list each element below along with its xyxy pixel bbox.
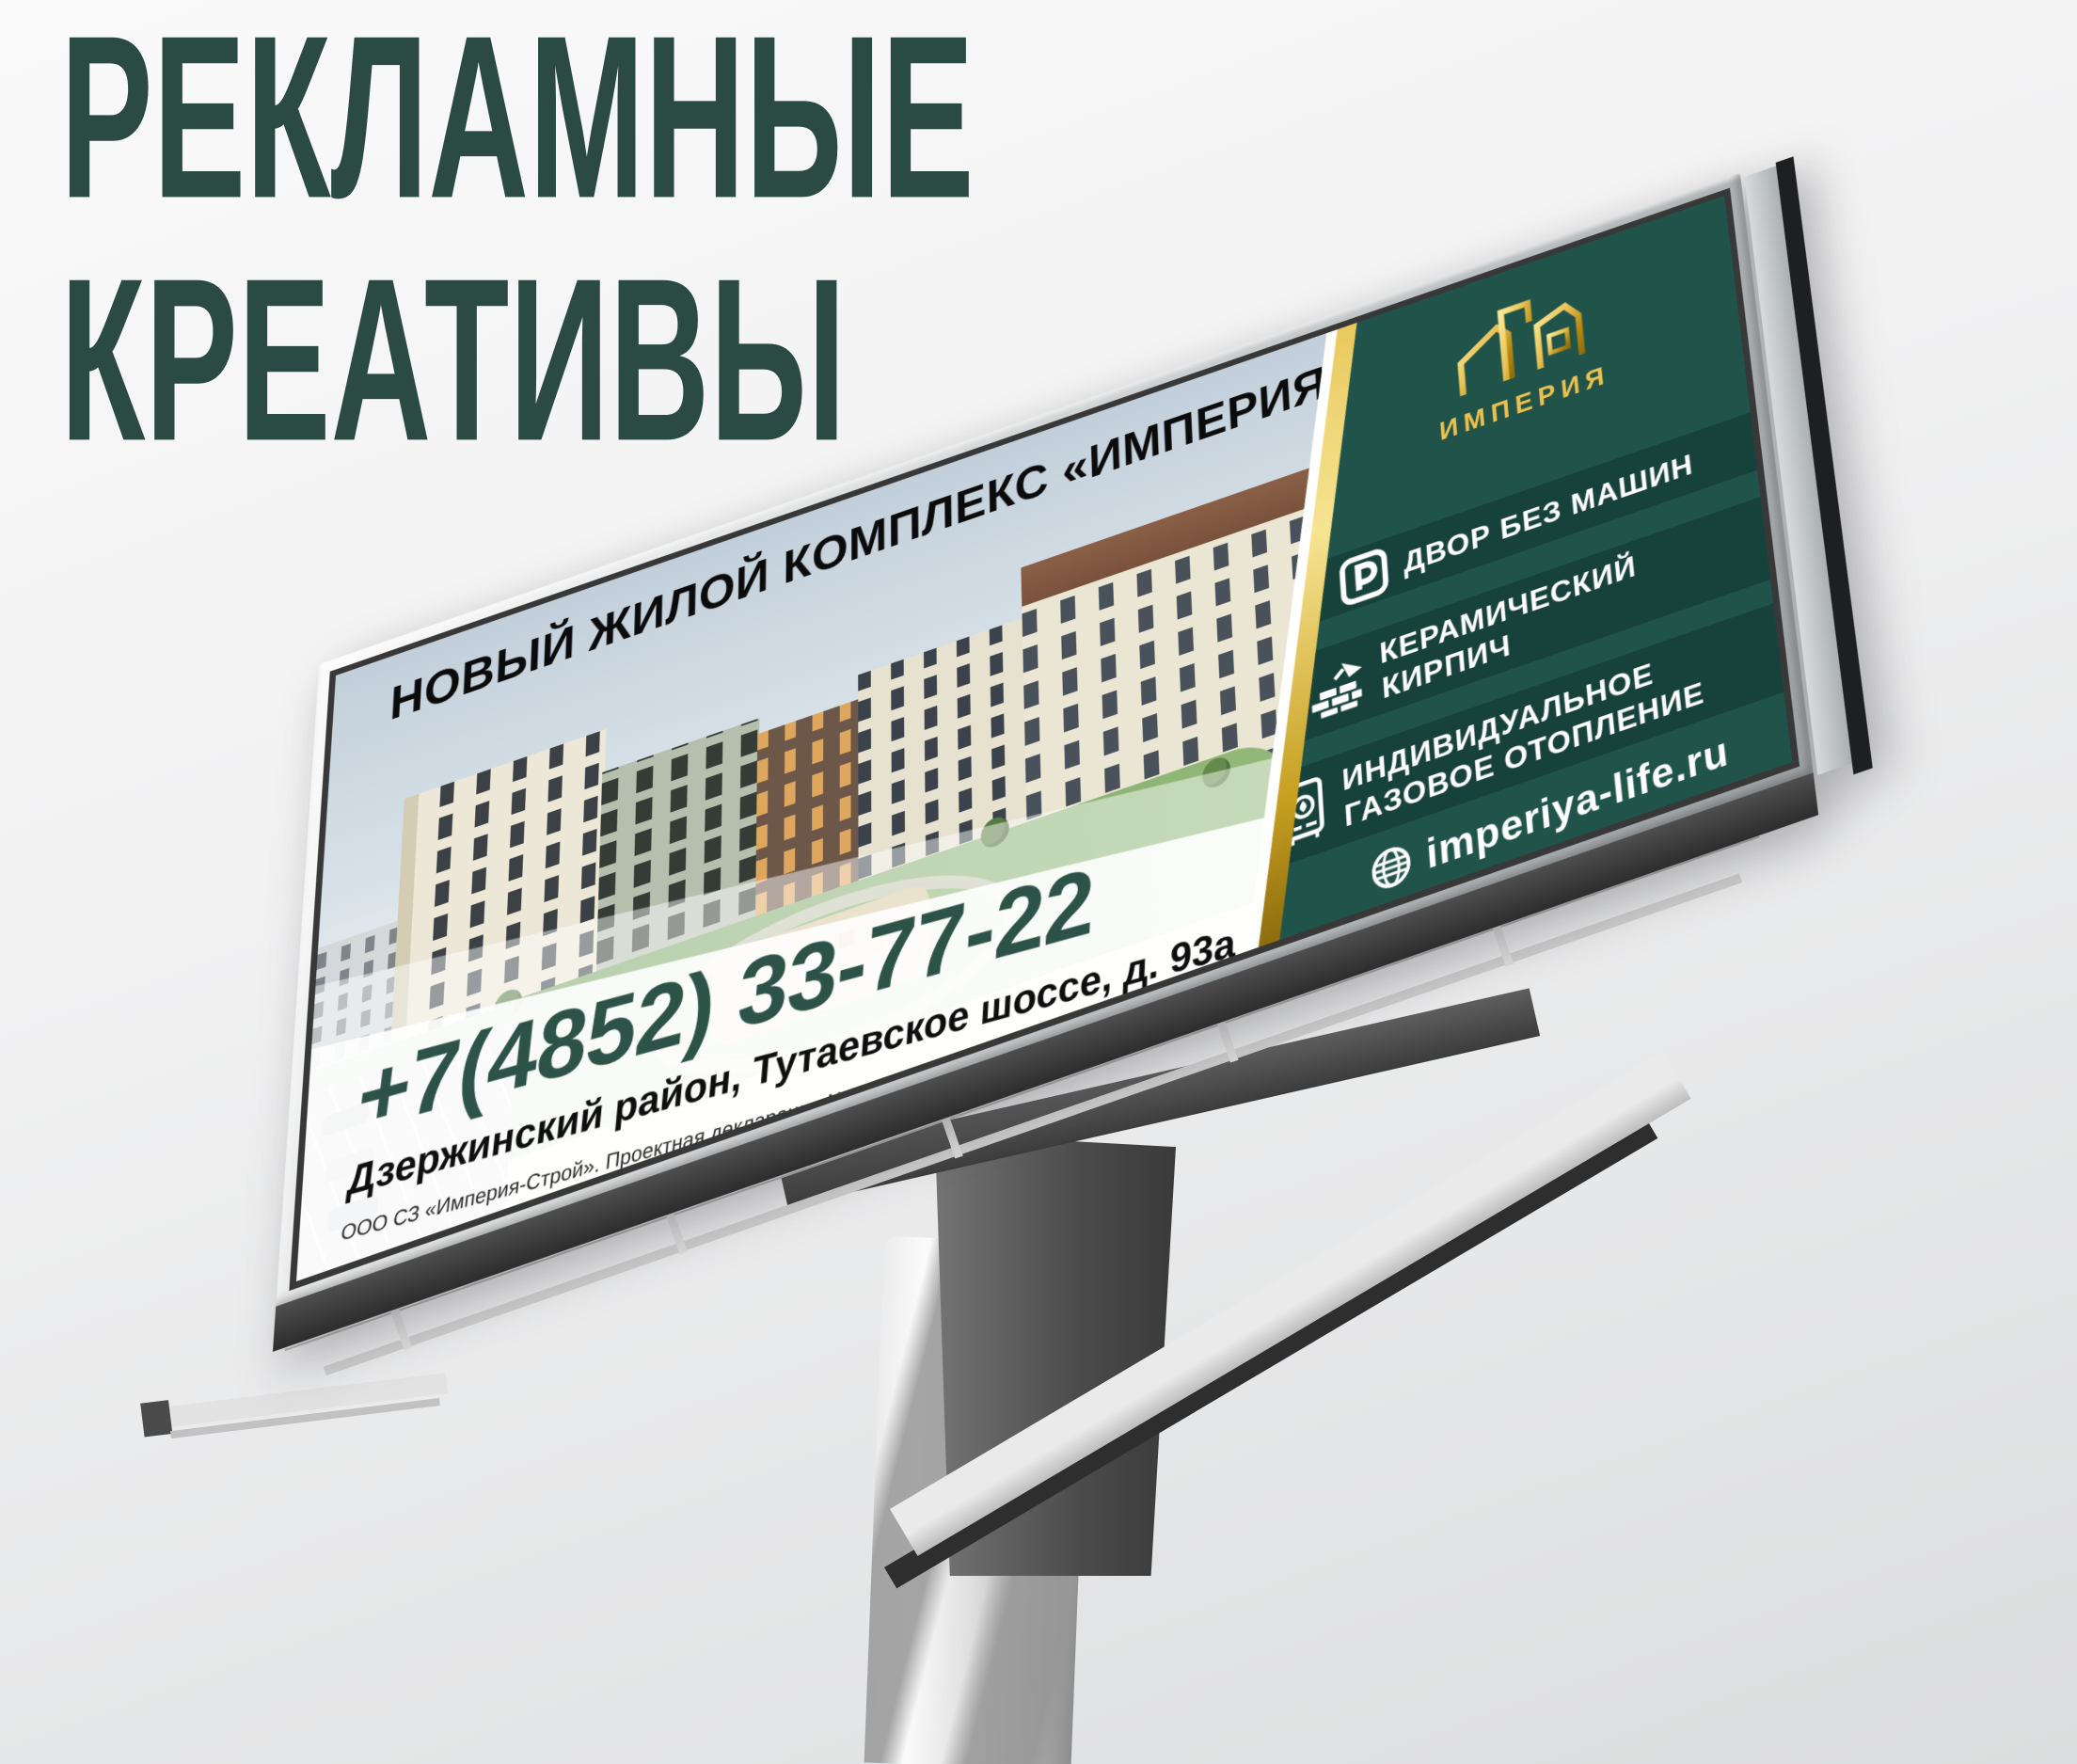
catwalk-underbar [170, 1398, 440, 1438]
catwalk-end-cap [140, 1400, 172, 1437]
scene: РЕКЛАМНЫЕ КРЕАТИВЫ [0, 0, 2077, 1764]
globe-icon [1368, 838, 1415, 898]
page-title-line2: КРЕАТИВЫ [60, 245, 846, 477]
page-title-line1: РЕКЛАМНЫЕ [60, 2, 975, 234]
